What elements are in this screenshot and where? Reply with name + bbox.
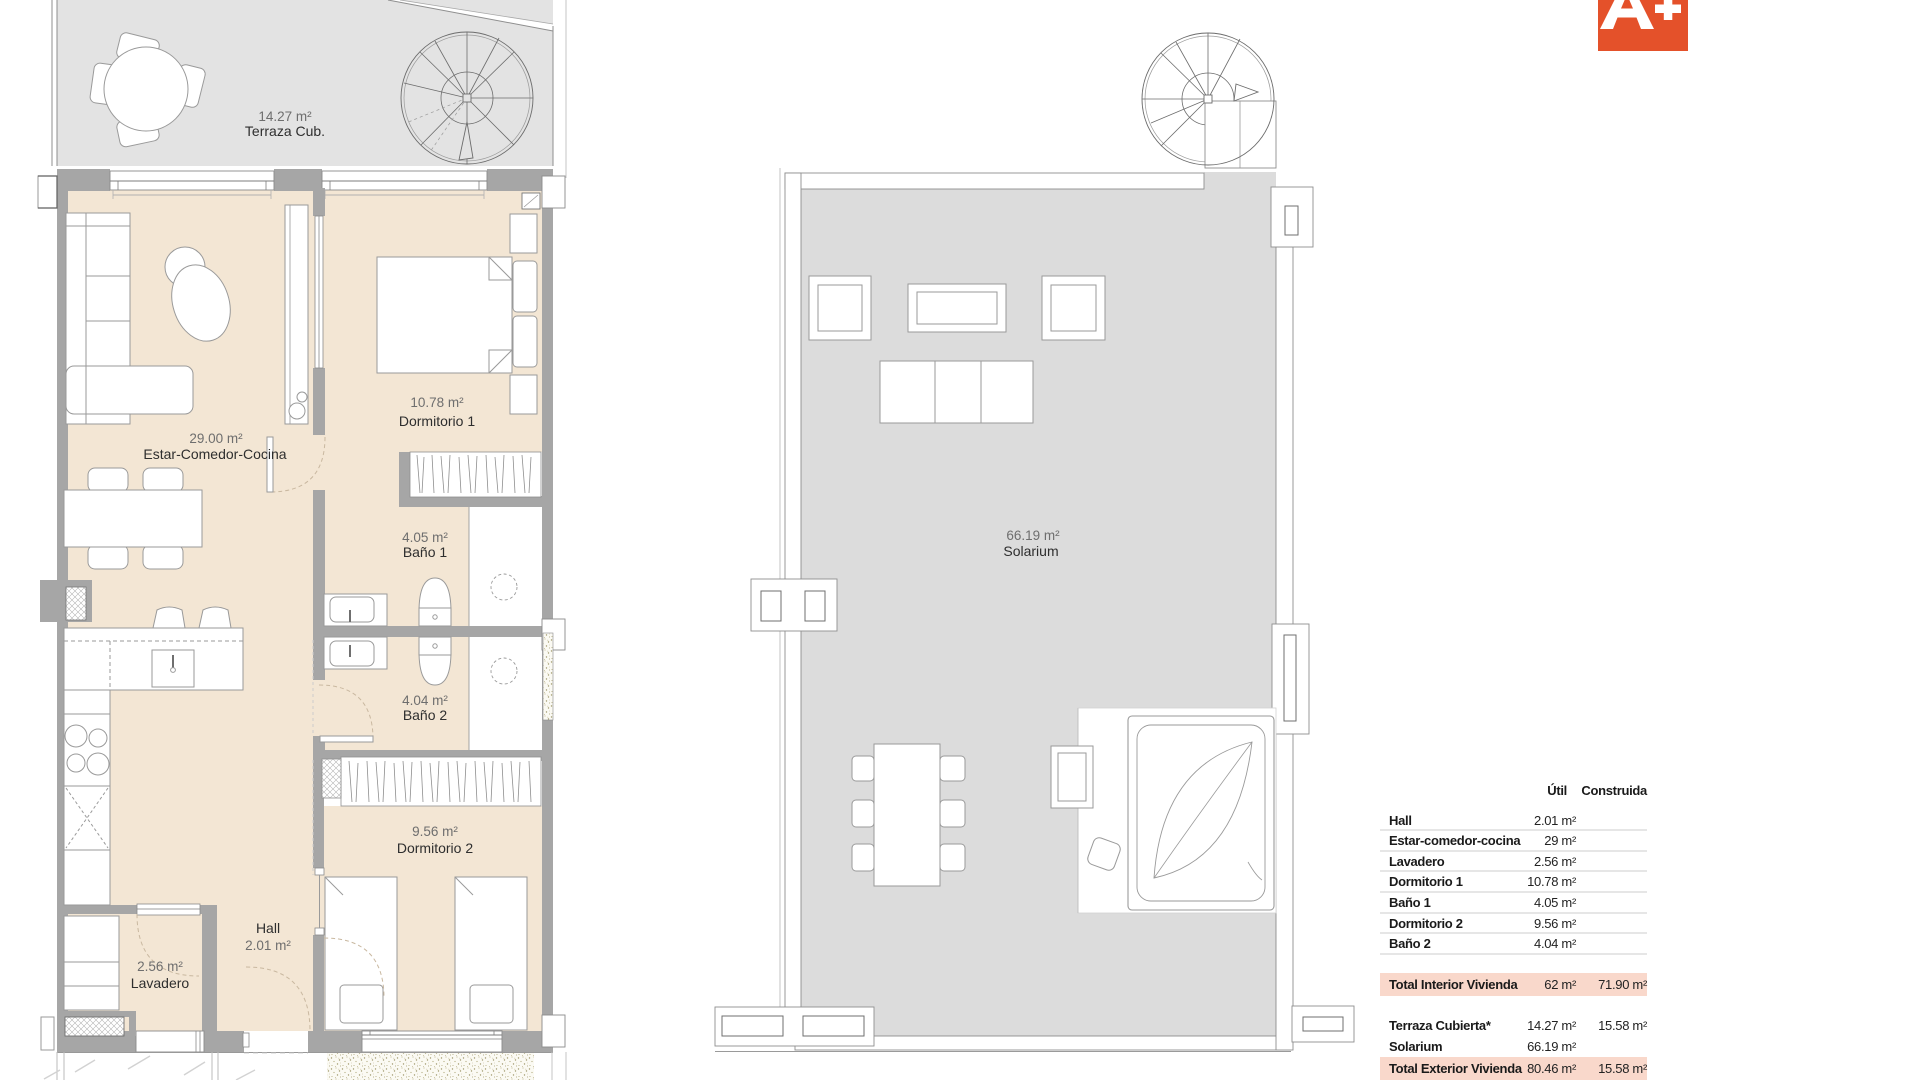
svg-text:9.56 m²: 9.56 m² xyxy=(412,824,458,839)
svg-text:Total Interior Vivienda: Total Interior Vivienda xyxy=(1389,977,1518,992)
svg-text:15.58 m²: 15.58 m² xyxy=(1598,1061,1648,1076)
svg-text:Total Exterior Vivienda: Total Exterior Vivienda xyxy=(1389,1061,1523,1076)
svg-text:Hall: Hall xyxy=(256,920,280,936)
svg-text:10.78 m²: 10.78 m² xyxy=(1527,874,1577,889)
svg-text:Lavadero: Lavadero xyxy=(131,975,190,991)
svg-text:Baño 1: Baño 1 xyxy=(403,544,448,560)
svg-text:Lavadero: Lavadero xyxy=(1389,854,1445,869)
svg-text:2.56 m²: 2.56 m² xyxy=(137,959,183,974)
svg-text:Útil: Útil xyxy=(1547,783,1567,798)
svg-text:Dormitorio 1: Dormitorio 1 xyxy=(1389,874,1463,889)
svg-text:Terraza Cubierta*: Terraza Cubierta* xyxy=(1389,1018,1492,1033)
svg-text:10.78 m²: 10.78 m² xyxy=(410,395,464,410)
svg-text:Baño 2: Baño 2 xyxy=(403,707,448,723)
svg-text:66.19 m²: 66.19 m² xyxy=(1006,528,1060,543)
svg-text:4.05 m²: 4.05 m² xyxy=(402,530,448,545)
svg-text:14.27 m²: 14.27 m² xyxy=(1527,1018,1577,1033)
svg-text:4.05 m²: 4.05 m² xyxy=(1534,895,1577,910)
svg-text:4.04 m²: 4.04 m² xyxy=(1534,936,1577,951)
svg-text:9.56 m²: 9.56 m² xyxy=(1534,916,1577,931)
svg-text:Construida: Construida xyxy=(1581,783,1648,798)
svg-text:Terraza Cub.: Terraza Cub. xyxy=(245,123,325,139)
svg-text:Hall: Hall xyxy=(1389,813,1412,828)
svg-text:80.46 m²: 80.46 m² xyxy=(1527,1061,1577,1076)
svg-text:62 m²: 62 m² xyxy=(1544,977,1577,992)
svg-text:Estar-comedor-cocina: Estar-comedor-cocina xyxy=(1389,833,1521,848)
svg-text:Dormitorio 1: Dormitorio 1 xyxy=(399,413,475,429)
svg-text:Estar-Comedor-Cocina: Estar-Comedor-Cocina xyxy=(143,446,286,462)
svg-text:Dormitorio 2: Dormitorio 2 xyxy=(1389,916,1463,931)
svg-text:29.00 m²: 29.00 m² xyxy=(189,431,243,446)
svg-text:4.04 m²: 4.04 m² xyxy=(402,693,448,708)
svg-text:2.01 m²: 2.01 m² xyxy=(245,938,291,953)
svg-text:66.19 m²: 66.19 m² xyxy=(1527,1039,1577,1054)
svg-text:Dormitorio 2: Dormitorio 2 xyxy=(397,840,473,856)
svg-text:29 m²: 29 m² xyxy=(1544,833,1577,848)
svg-text:2.56 m²: 2.56 m² xyxy=(1534,854,1577,869)
svg-text:Solarium: Solarium xyxy=(1389,1039,1442,1054)
svg-text:2.01 m²: 2.01 m² xyxy=(1534,813,1577,828)
svg-text:14.27 m²: 14.27 m² xyxy=(258,109,312,124)
svg-text:Baño 1: Baño 1 xyxy=(1389,895,1431,910)
svg-text:Baño 2: Baño 2 xyxy=(1389,936,1431,951)
svg-text:71.90 m²: 71.90 m² xyxy=(1598,977,1648,992)
svg-text:Solarium: Solarium xyxy=(1003,543,1058,559)
svg-text:15.58 m²: 15.58 m² xyxy=(1598,1018,1648,1033)
